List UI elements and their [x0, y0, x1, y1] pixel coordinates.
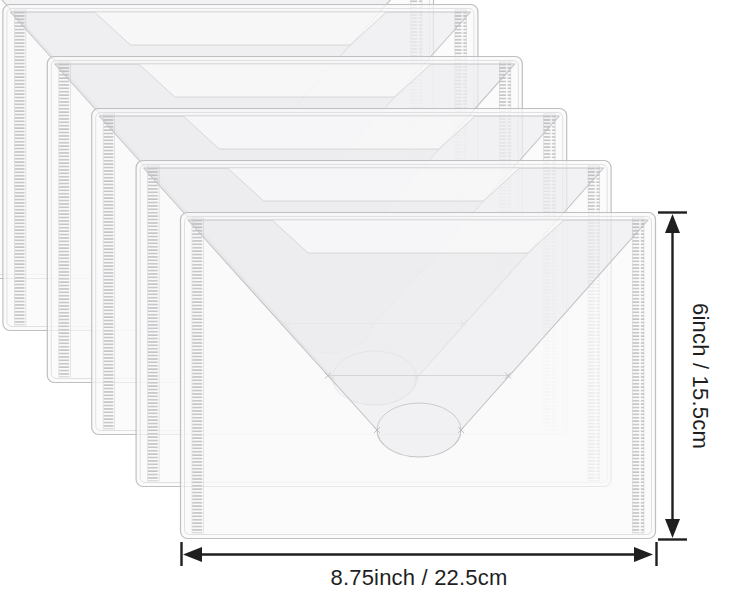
envelope-folder-6: [181, 213, 656, 539]
envelope-stack-illustration: [0, 0, 734, 598]
width-dimension-arrow: [182, 542, 657, 566]
height-dimension-arrow: [658, 213, 687, 540]
width-dimension-label: 8.75inch / 22.5cm: [330, 565, 507, 591]
product-image: 8.75inch / 22.5cm 6inch / 15.5cm: [0, 0, 734, 598]
height-dimension-label: 6inch / 15.5cm: [687, 303, 713, 449]
